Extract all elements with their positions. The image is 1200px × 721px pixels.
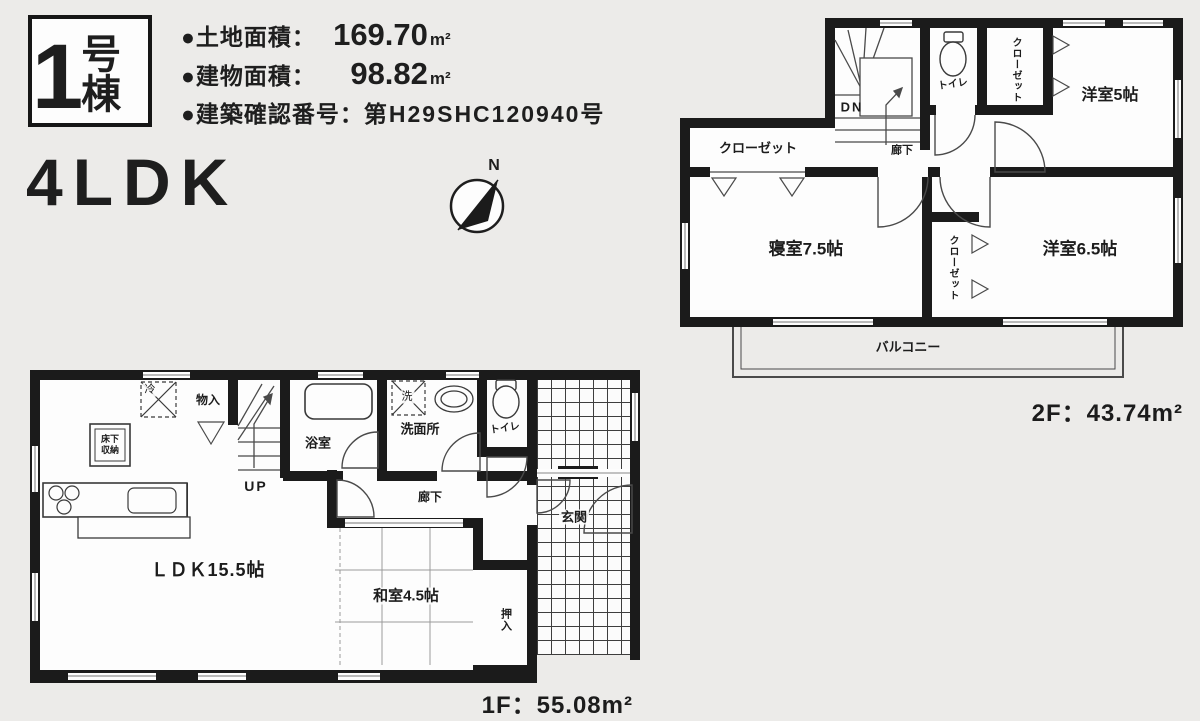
spec-permit-number: ●建築確認番号： 第H29SHC120940号 xyxy=(181,95,605,129)
sink-icon xyxy=(435,386,473,412)
spec-building-area-unit: m² xyxy=(430,69,451,89)
building-number-suffix: 号棟 xyxy=(81,35,148,115)
building-number: 1 xyxy=(32,40,79,115)
spec-permit-value: 第H29SHC120940号 xyxy=(364,95,606,129)
spec-permit-label: ●建築確認番号： xyxy=(181,95,364,129)
room-label-washitsu: 和室4.5帖 xyxy=(371,588,441,605)
bathtub-icon xyxy=(305,384,372,419)
toilet-icon-1f xyxy=(493,380,519,418)
spec-building-area-label: ●建物面積： xyxy=(181,57,316,91)
spec-land-area: ●土地面積： 169.70 m² xyxy=(181,17,605,53)
room-label-ldk: ＬＤＫ15.5帖 xyxy=(150,561,265,579)
compass-icon xyxy=(451,180,503,232)
room-label-oshiire: 押入 xyxy=(500,608,511,632)
room-label-washroom: 洗面所 xyxy=(400,423,439,436)
room-label-underfloor: 床下収納 xyxy=(98,434,122,456)
spec-land-area-value: 169.70 xyxy=(316,17,428,53)
room-label-closet-top: クローゼット xyxy=(1010,37,1020,103)
spec-building-area: ●建物面積： 98.82 m² xyxy=(181,56,605,92)
room-label-hallway-2f: 廊下 xyxy=(891,146,913,157)
spec-land-area-unit: m² xyxy=(430,30,451,50)
building-number-badge: 1 号棟 xyxy=(28,15,152,127)
compass-north-label: N xyxy=(488,157,500,175)
stairs-up-icon xyxy=(238,384,280,470)
room-label-hallway-1f: 廊下 xyxy=(418,491,442,503)
room-label-bedroom: 寝室7.5帖 xyxy=(769,241,844,258)
room-label-fridge: 冷 xyxy=(143,384,158,397)
spec-land-area-label: ●土地面積： xyxy=(181,18,316,52)
room-label-storage: 物入 xyxy=(196,394,220,406)
stairs-up-label: UP xyxy=(244,479,267,493)
property-specs: ●土地面積： 169.70 m² ●建物面積： 98.82 m² ●建築確認番号… xyxy=(181,17,605,132)
kitchen-counter-icon xyxy=(43,483,190,538)
stairs-down-icon xyxy=(835,28,920,145)
room-label-closet-mid: クローゼット xyxy=(947,235,957,301)
storage-bifold-mark xyxy=(198,422,224,444)
layout-type-label: 4LDK xyxy=(26,143,238,222)
room-label-balcony: バルコニー xyxy=(873,341,944,354)
room-label-closet-left: クローゼット xyxy=(719,142,797,155)
room-label-western65: 洋室6.5帖 xyxy=(1043,241,1118,258)
floor1-area-label: 1F：55.08m² xyxy=(482,685,633,720)
room-label-bath: 浴室 xyxy=(305,437,331,450)
floor2-area-label: 2F：43.74m² xyxy=(1032,393,1183,428)
floorplan-flyer: { "page": {"background": "#ecebe9"}, "he… xyxy=(0,0,1200,721)
spec-building-area-value: 98.82 xyxy=(316,56,428,92)
toilet-icon-2f xyxy=(940,32,966,76)
room-label-western5: 洋室5帖 xyxy=(1082,88,1139,104)
room-label-washer: 洗 xyxy=(400,391,415,404)
room-label-genkan: 玄関 xyxy=(559,510,589,525)
entrance-step xyxy=(537,469,630,477)
stairs-dn-label: DN xyxy=(841,101,864,114)
